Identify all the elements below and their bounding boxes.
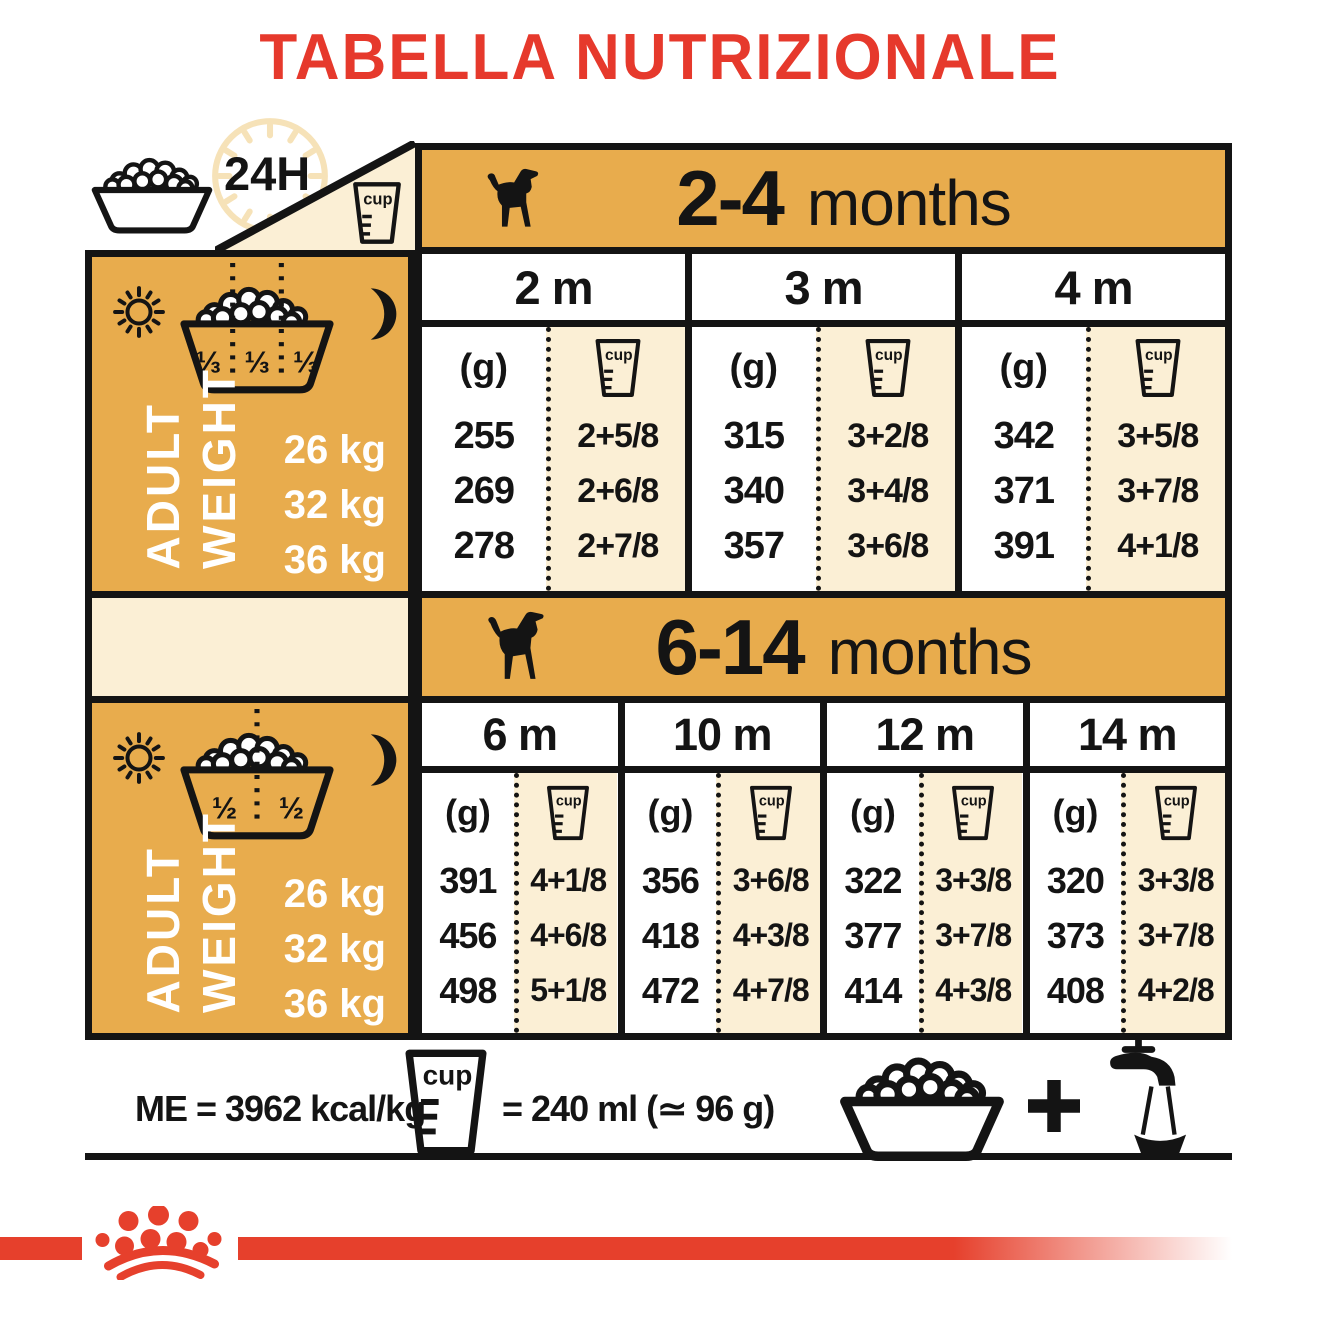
feeding-panel-6-14: ½ ½ ADULT WEIGHT 26 kg 32 kg 36 kg xyxy=(85,696,415,1040)
spacer-cell xyxy=(85,591,415,703)
weight-label: WEIGHT xyxy=(196,811,242,1013)
grams-value: 373 xyxy=(1030,908,1122,963)
measuring-cup-icon: cup xyxy=(746,784,796,842)
grams-unit-label: (g) xyxy=(422,327,546,409)
cup-value: 4+2/8 xyxy=(1126,963,1225,1018)
grams-value: 278 xyxy=(422,519,546,574)
grams-value: 377 xyxy=(827,908,919,963)
measuring-cup-icon: cup xyxy=(948,784,998,842)
cup-value: 4+1/8 xyxy=(519,853,618,908)
month-header: 3 m xyxy=(692,254,955,327)
grams-value: 498 xyxy=(422,963,514,1018)
sun-icon xyxy=(108,727,170,789)
svg-text:cup: cup xyxy=(556,793,582,809)
month-column-6m: 6 m (g) 391 456 498 cup xyxy=(422,703,618,1033)
month-header: 4 m xyxy=(962,254,1225,327)
measuring-cup-icon: cup xyxy=(1151,784,1201,842)
measuring-cup-icon: cup xyxy=(543,784,593,842)
puppy-icon xyxy=(484,167,542,231)
royal-canin-crown-logo xyxy=(92,1206,230,1280)
cup-value: 3+4/8 xyxy=(821,464,955,519)
footer-divider-line xyxy=(85,1153,1232,1160)
month-column-2m: 2 m (g) 255 269 278 cup xyxy=(422,254,685,591)
month-header: 10 m xyxy=(625,703,821,773)
brand-band xyxy=(238,1237,1232,1260)
cup-value: 4+1/8 xyxy=(1091,519,1225,574)
brand-band-left xyxy=(0,1237,82,1260)
svg-text:cup: cup xyxy=(1145,347,1173,364)
cup-value: 3+3/8 xyxy=(1126,853,1225,908)
feeding-panel-2-4: ⅓ ⅓ ⅓ ADULT WEIGHT 26 kg 32 kg 36 kg xyxy=(85,250,415,598)
adult-dog-icon xyxy=(484,609,546,685)
svg-text:cup: cup xyxy=(1164,793,1190,809)
month-column-10m: 10 m (g) 356 418 472 cup xyxy=(618,703,821,1033)
weight-row-label: 36 kg xyxy=(246,977,386,1032)
svg-text:cup: cup xyxy=(875,347,903,364)
cup-value: 3+2/8 xyxy=(821,409,955,464)
grams-unit-label: (g) xyxy=(692,327,816,409)
adult-label: ADULT xyxy=(140,402,186,569)
grams-value: 255 xyxy=(422,409,546,464)
grams-unit-label: (g) xyxy=(1030,773,1122,853)
cup-value: 3+6/8 xyxy=(821,519,955,574)
moon-icon xyxy=(358,733,400,787)
grams-unit-label: (g) xyxy=(422,773,514,853)
month-column-4m: 4 m (g) 342 371 391 cup xyxy=(955,254,1225,591)
age-range: 6-14 xyxy=(656,602,804,693)
cup-value: 4+7/8 xyxy=(721,963,820,1018)
age-word: months xyxy=(828,615,1032,689)
grams-value: 391 xyxy=(422,853,514,908)
grams-value: 322 xyxy=(827,853,919,908)
cup-equivalence-note: = 240 ml (≃ 96 g) xyxy=(502,1088,774,1130)
cup-value: 2+7/8 xyxy=(551,519,685,574)
cup-value: 3+7/8 xyxy=(1126,908,1225,963)
svg-text:cup: cup xyxy=(423,1059,473,1090)
grams-value: 340 xyxy=(692,464,816,519)
svg-text:cup: cup xyxy=(759,793,785,809)
grams-value: 320 xyxy=(1030,853,1122,908)
grams-value: 315 xyxy=(692,409,816,464)
svg-text:cup: cup xyxy=(363,190,392,208)
section-header-2-4-months: 2-4 months xyxy=(415,143,1232,254)
cup-value: 2+6/8 xyxy=(551,464,685,519)
age-word: months xyxy=(807,166,1011,240)
grams-value: 418 xyxy=(625,908,717,963)
month-column-12m: 12 m (g) 322 377 414 cup xyxy=(820,703,1023,1033)
svg-text:⅓: ⅓ xyxy=(244,346,269,380)
grams-unit-label: (g) xyxy=(962,327,1086,409)
kibble-bowl-icon xyxy=(833,1042,1011,1161)
grams-value: 342 xyxy=(962,409,1086,464)
measuring-cup-icon: cup xyxy=(1131,337,1185,399)
cup-value: 3+7/8 xyxy=(924,908,1023,963)
cup-value: 4+6/8 xyxy=(519,908,618,963)
month-column-14m: 14 m (g) 320 373 408 cup xyxy=(1023,703,1226,1033)
grams-value: 371 xyxy=(962,464,1086,519)
measuring-cup-icon: cup xyxy=(348,180,406,246)
grams-unit-label: (g) xyxy=(827,773,919,853)
cup-value: 3+7/8 xyxy=(1091,464,1225,519)
cup-value: 4+3/8 xyxy=(721,908,820,963)
month-header: 14 m xyxy=(1030,703,1226,773)
cup-value: 2+5/8 xyxy=(551,409,685,464)
weight-row-label: 26 kg xyxy=(246,867,386,922)
kibble-bowl-icon xyxy=(86,146,218,234)
grams-value: 472 xyxy=(625,963,717,1018)
svg-text:⅓: ⅓ xyxy=(293,346,318,380)
nutrition-table-page: TABELLA NUTRIZIONALE 24H cup xyxy=(0,0,1320,1320)
measuring-cup-icon: cup xyxy=(591,337,645,399)
weight-row-label: 36 kg xyxy=(246,533,386,588)
grams-value: 269 xyxy=(422,464,546,519)
page-title: TABELLA NUTRIZIONALE xyxy=(0,20,1320,95)
month-header: 12 m xyxy=(827,703,1023,773)
weight-row-label: 32 kg xyxy=(246,922,386,977)
ration-table-2-4-months: 2 m (g) 255 269 278 cup xyxy=(415,247,1232,598)
cup-value: 3+3/8 xyxy=(924,853,1023,908)
metabolizable-energy-note: ME = 3962 kcal/kg xyxy=(135,1088,425,1130)
grams-value: 414 xyxy=(827,963,919,1018)
age-range: 2-4 xyxy=(676,153,783,244)
grams-value: 357 xyxy=(692,519,816,574)
moon-icon xyxy=(358,287,400,341)
plus-icon xyxy=(1028,1080,1080,1132)
cup-value: 5+1/8 xyxy=(519,963,618,1018)
adult-label: ADULT xyxy=(140,846,186,1013)
measuring-cup-icon: cup xyxy=(398,1046,494,1158)
svg-text:cup: cup xyxy=(605,347,633,364)
cup-value: 4+3/8 xyxy=(924,963,1023,1018)
ration-table-6-14-months: 6 m (g) 391 456 498 cup xyxy=(415,696,1232,1040)
measuring-cup-icon: cup xyxy=(861,337,915,399)
cup-value: 3+6/8 xyxy=(721,853,820,908)
section-header-6-14-months: 6-14 months xyxy=(415,591,1232,703)
month-header: 6 m xyxy=(422,703,618,773)
sun-icon xyxy=(108,281,170,343)
month-header: 2 m xyxy=(422,254,685,327)
month-column-3m: 3 m (g) 315 340 357 cup xyxy=(685,254,955,591)
water-tap-icon xyxy=(1088,1036,1188,1164)
grams-value: 456 xyxy=(422,908,514,963)
svg-text:cup: cup xyxy=(961,793,987,809)
svg-text:½: ½ xyxy=(279,792,304,826)
cup-value: 3+5/8 xyxy=(1091,409,1225,464)
grams-value: 408 xyxy=(1030,963,1122,1018)
grams-unit-label: (g) xyxy=(625,773,717,853)
grams-value: 356 xyxy=(625,853,717,908)
weight-row-label: 26 kg xyxy=(246,423,386,478)
weight-label: WEIGHT xyxy=(196,367,242,569)
grams-value: 391 xyxy=(962,519,1086,574)
weight-row-label: 32 kg xyxy=(246,478,386,533)
